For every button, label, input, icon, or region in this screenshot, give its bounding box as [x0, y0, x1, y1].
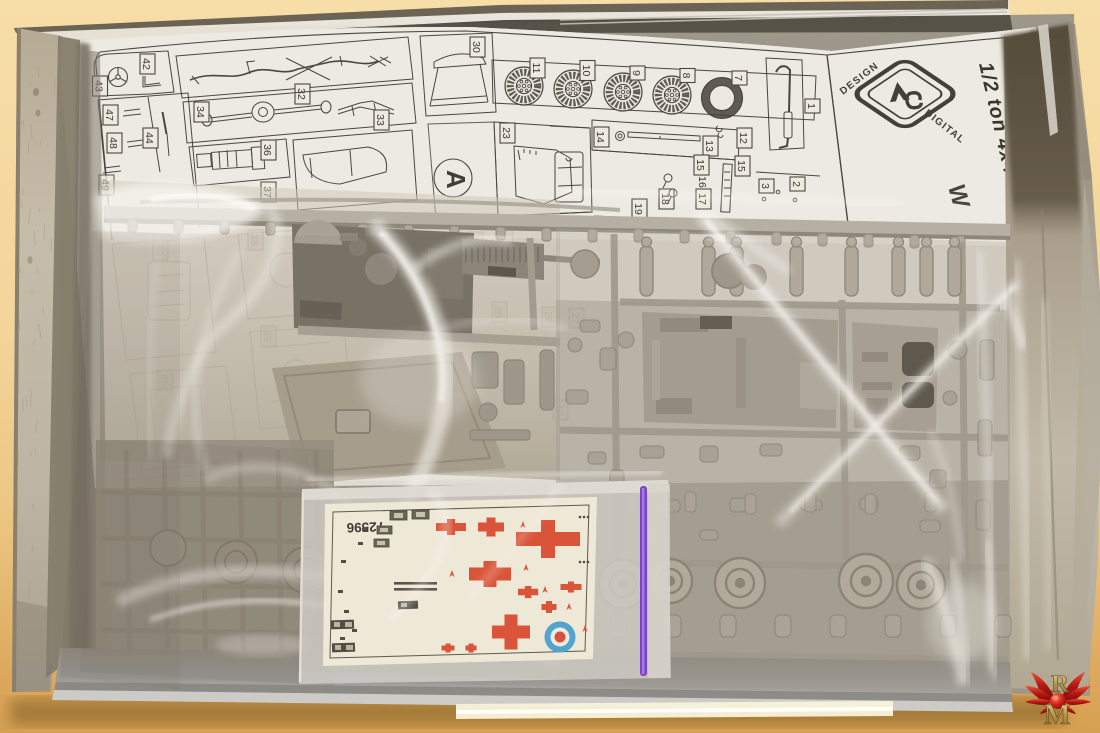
svg-text:M: M: [1044, 700, 1070, 731]
